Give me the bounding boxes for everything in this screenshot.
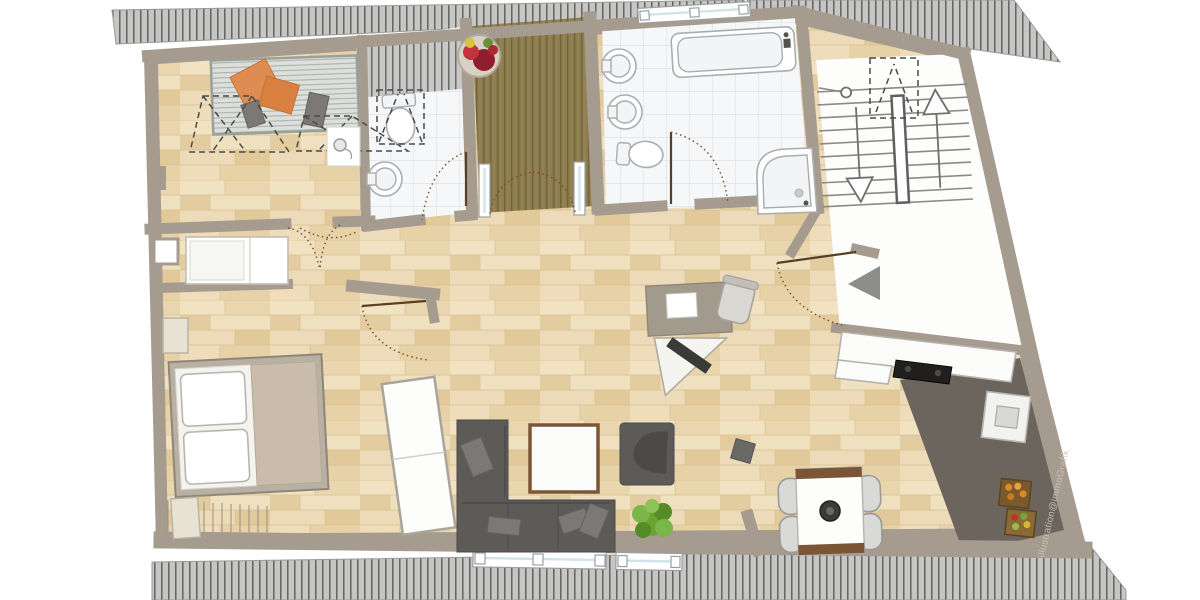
double-bed xyxy=(169,354,329,497)
stair-railing-post xyxy=(841,87,852,98)
coffee-table xyxy=(530,425,598,492)
small-mat xyxy=(327,127,360,166)
shower xyxy=(757,148,817,214)
fruit-basket-1 xyxy=(999,479,1032,509)
flower-pot xyxy=(458,35,500,77)
bath-basin-1 xyxy=(602,49,636,83)
window-living-1 xyxy=(473,550,606,569)
armchair xyxy=(620,423,674,485)
alcove-bed xyxy=(186,237,288,284)
bath-basin-2 xyxy=(608,95,642,129)
wall-niche xyxy=(154,239,178,264)
bed-blanket xyxy=(251,361,322,485)
kitchen-appliance xyxy=(981,391,1030,442)
window-living-2 xyxy=(616,552,682,570)
nightstand xyxy=(163,318,188,353)
bath-toilet xyxy=(616,139,664,168)
bathtub xyxy=(671,26,796,77)
bedroom-cabinet xyxy=(171,497,201,539)
desk-paper xyxy=(666,293,697,319)
bed-pillow-2 xyxy=(183,429,250,484)
dining-set xyxy=(778,466,883,556)
floor-plan: illustration@immoGrafik xyxy=(0,0,1200,600)
bed-pillow-1 xyxy=(180,371,247,426)
fruit-basket-2 xyxy=(1005,509,1037,538)
wc-basin xyxy=(367,162,402,196)
